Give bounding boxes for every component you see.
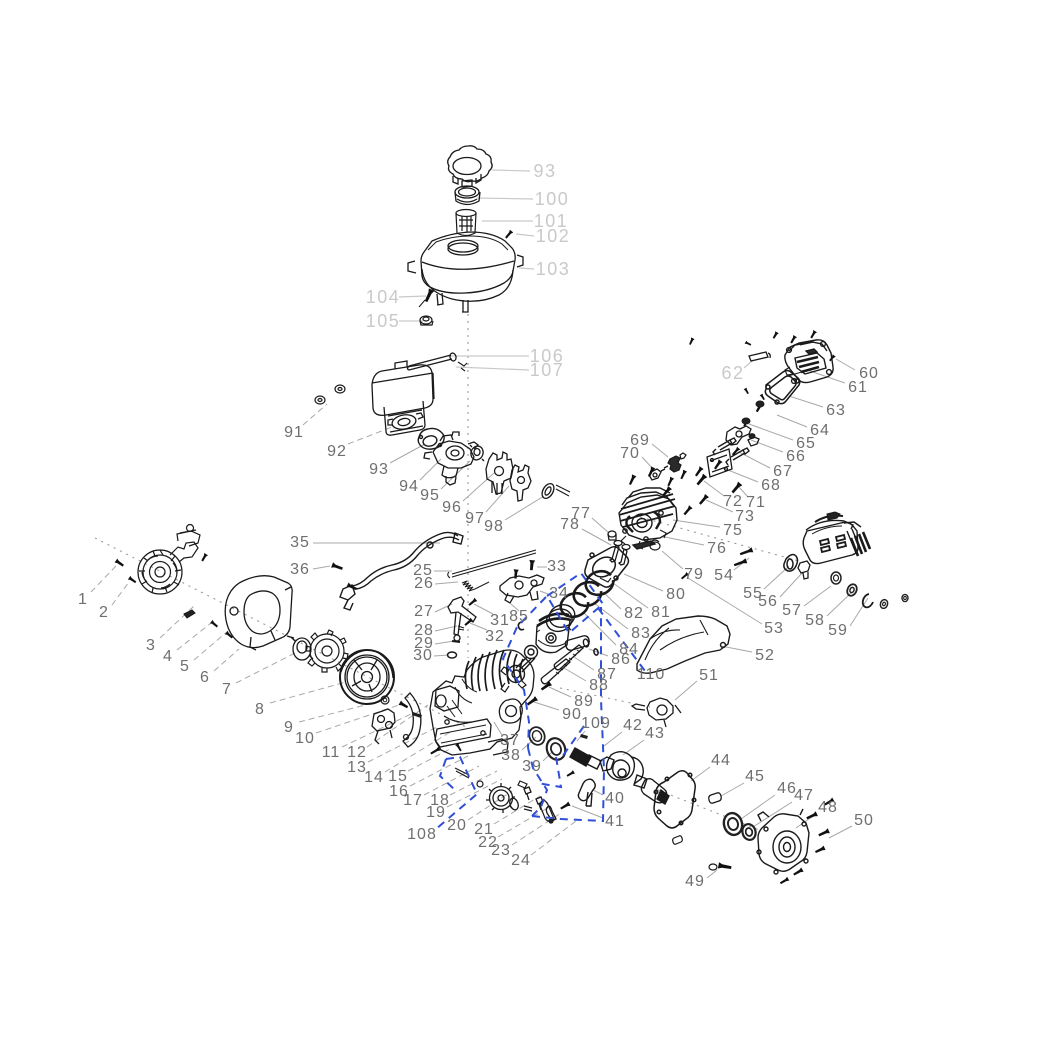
svg-text:23: 23 [491, 842, 511, 859]
svg-text:14: 14 [364, 769, 384, 786]
svg-text:56: 56 [758, 593, 778, 610]
svg-text:57: 57 [782, 602, 802, 619]
svg-text:107: 107 [530, 360, 565, 380]
svg-text:102: 102 [536, 226, 571, 246]
svg-text:63: 63 [826, 402, 846, 419]
svg-text:59: 59 [828, 622, 848, 639]
svg-text:43: 43 [645, 725, 665, 742]
svg-text:61: 61 [848, 379, 868, 396]
svg-text:33: 33 [547, 558, 567, 575]
svg-text:94: 94 [399, 478, 419, 495]
svg-text:105: 105 [366, 311, 401, 331]
svg-text:8: 8 [255, 701, 265, 718]
svg-text:9: 9 [284, 719, 294, 736]
svg-text:24: 24 [511, 852, 531, 869]
svg-text:96: 96 [442, 499, 462, 516]
svg-text:1: 1 [78, 591, 88, 608]
svg-text:108: 108 [407, 826, 437, 843]
svg-text:11: 11 [322, 744, 341, 761]
svg-text:100: 100 [535, 189, 570, 209]
svg-text:70: 70 [620, 445, 640, 462]
svg-text:75: 75 [723, 522, 743, 539]
svg-text:32: 32 [485, 628, 505, 645]
svg-text:80: 80 [666, 586, 686, 603]
svg-text:110: 110 [637, 666, 666, 683]
svg-text:41: 41 [605, 813, 625, 830]
svg-text:95: 95 [420, 487, 440, 504]
svg-text:82: 82 [624, 605, 644, 622]
svg-text:5: 5 [180, 658, 190, 675]
svg-text:40: 40 [605, 790, 625, 807]
svg-text:76: 76 [707, 540, 727, 557]
svg-text:54: 54 [714, 567, 734, 584]
svg-text:26: 26 [414, 575, 434, 592]
svg-text:30: 30 [413, 647, 433, 664]
svg-text:39: 39 [522, 758, 542, 775]
svg-text:58: 58 [805, 612, 825, 629]
svg-text:42: 42 [623, 717, 643, 734]
svg-text:98: 98 [484, 518, 504, 535]
svg-text:52: 52 [755, 647, 775, 664]
svg-text:3: 3 [146, 637, 156, 654]
svg-text:62: 62 [721, 363, 744, 383]
svg-text:7: 7 [222, 681, 232, 698]
svg-text:20: 20 [447, 817, 467, 834]
svg-text:6: 6 [200, 669, 210, 686]
svg-text:93: 93 [533, 161, 556, 181]
svg-text:34: 34 [549, 585, 569, 602]
svg-text:81: 81 [651, 604, 671, 621]
svg-text:17: 17 [403, 792, 423, 809]
svg-text:36: 36 [290, 561, 310, 578]
svg-text:19: 19 [426, 804, 446, 821]
svg-text:88: 88 [589, 677, 609, 694]
svg-text:91: 91 [284, 424, 304, 441]
svg-text:90: 90 [562, 706, 582, 723]
svg-text:45: 45 [745, 768, 765, 785]
svg-text:48: 48 [818, 799, 838, 816]
svg-text:79: 79 [684, 566, 704, 583]
svg-text:38: 38 [501, 747, 521, 764]
svg-text:51: 51 [699, 667, 719, 684]
svg-text:97: 97 [465, 510, 485, 527]
svg-text:103: 103 [536, 259, 571, 279]
svg-text:10: 10 [295, 730, 315, 747]
svg-text:109: 109 [581, 715, 611, 732]
svg-text:27: 27 [414, 603, 434, 620]
svg-text:50: 50 [854, 812, 874, 829]
svg-text:44: 44 [711, 752, 731, 769]
svg-text:85: 85 [509, 608, 529, 625]
svg-text:93: 93 [369, 461, 389, 478]
svg-text:35: 35 [290, 534, 310, 551]
svg-text:53: 53 [764, 620, 784, 637]
svg-text:49: 49 [685, 873, 705, 890]
svg-text:83: 83 [631, 625, 651, 642]
svg-text:78: 78 [560, 516, 580, 533]
svg-text:47: 47 [794, 787, 814, 804]
svg-text:92: 92 [327, 443, 347, 460]
svg-text:4: 4 [163, 648, 173, 665]
svg-text:2: 2 [99, 604, 109, 621]
svg-text:104: 104 [366, 287, 401, 307]
svg-text:68: 68 [761, 477, 781, 494]
svg-text:31: 31 [490, 612, 510, 629]
